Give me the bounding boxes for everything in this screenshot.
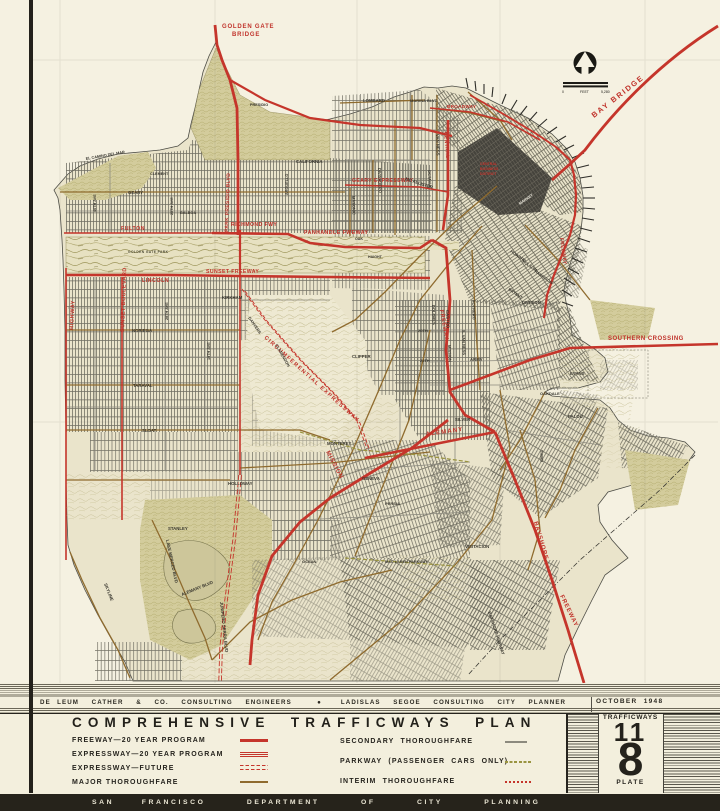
svg-text:BROADWAY: BROADWAY (447, 104, 476, 109)
svg-text:MARINA BLVD: MARINA BLVD (410, 98, 438, 103)
svg-text:DOLORES: DOLORES (431, 305, 437, 325)
svg-text:SUNSET FREEWAY: SUNSET FREEWAY (206, 269, 259, 275)
svg-text:5,280: 5,280 (601, 90, 610, 94)
svg-text:SILVER: SILVER (455, 417, 471, 422)
svg-text:KIRKHAM: KIRKHAM (222, 295, 243, 300)
svg-text:CLIPPER: CLIPPER (352, 354, 372, 359)
svg-text:THIRD: THIRD (539, 450, 544, 462)
svg-text:19TH AVE: 19TH AVE (207, 342, 211, 360)
svg-text:RICHMOND FWY: RICHMOND FWY (231, 222, 277, 228)
svg-text:OAKDALE: OAKDALE (540, 391, 560, 396)
svg-text:0: 0 (562, 90, 564, 94)
svg-text:GOLDEN GATE: GOLDEN GATE (222, 24, 274, 30)
svg-text:PALOU: PALOU (568, 414, 583, 419)
svg-text:VAN NESS: VAN NESS (435, 134, 441, 156)
svg-text:HOLLOWAY: HOLLOWAY (228, 481, 253, 486)
svg-text:CLEMENT: CLEMENT (150, 172, 169, 176)
svg-text:BRIDGE: BRIDGE (232, 32, 260, 38)
svg-text:CASTRO: CASTRO (445, 310, 451, 329)
svg-text:CENTRAL: CENTRAL (480, 162, 498, 166)
svg-text:DIVISION: DIVISION (522, 300, 541, 305)
svg-text:HAIGHT: HAIGHT (368, 255, 383, 259)
svg-text:28TH AVE: 28TH AVE (165, 302, 169, 320)
svg-text:25TH AVE: 25TH AVE (170, 197, 174, 215)
svg-text:FULTON: FULTON (121, 226, 145, 232)
svg-text:24TH: 24TH (420, 358, 430, 363)
svg-text:LOMBARD: LOMBARD (363, 98, 385, 103)
svg-text:SOUTHERN CROSSING: SOUTHERN CROSSING (608, 336, 684, 342)
svg-text:ARGUELLO: ARGUELLO (285, 174, 289, 195)
svg-text:PANHANDLE FWEWAY: PANHANDLE FWEWAY (304, 230, 369, 236)
svg-text:DISTRICT: DISTRICT (480, 172, 497, 176)
svg-text:MISSION: MISSION (447, 345, 453, 362)
svg-text:BUSINESS: BUSINESS (480, 167, 499, 171)
svg-text:TARAVAL: TARAVAL (133, 383, 153, 388)
svg-text:20TH: 20TH (418, 328, 428, 333)
svg-text:LINCOLN: LINCOLN (142, 278, 169, 284)
svg-text:STANLEY: STANLEY (168, 526, 188, 531)
svg-text:GOLDEN GATE PARK: GOLDEN GATE PARK (128, 250, 169, 254)
svg-text:GENEVA: GENEVA (362, 476, 380, 481)
svg-text:PRESIDIO: PRESIDIO (250, 103, 268, 107)
svg-text:OCEAN: OCEAN (302, 559, 317, 564)
svg-text:S. VAN NESS: S. VAN NESS (461, 330, 467, 356)
svg-text:VISITACION: VISITACION (465, 544, 489, 549)
svg-text:DIVISADERO: DIVISADERO (377, 168, 383, 193)
svg-text:MASONIC: MASONIC (351, 196, 357, 215)
svg-text:SLOAT: SLOAT (142, 428, 157, 433)
svg-text:FEET: FEET (580, 90, 590, 94)
svg-text:40TH AVE: 40TH AVE (93, 194, 97, 212)
svg-text:MONTEREY: MONTEREY (327, 441, 351, 446)
svg-text:POTRERO: POTRERO (471, 300, 477, 320)
svg-text:ARMY: ARMY (470, 357, 483, 362)
svg-text:NORIEGA: NORIEGA (132, 328, 152, 333)
svg-text:OAK: OAK (355, 237, 363, 241)
svg-text:CALIFORNIA: CALIFORNIA (296, 159, 323, 164)
svg-text:EVANS: EVANS (570, 371, 585, 376)
svg-text:MAC LAREN PARKWAY: MAC LAREN PARKWAY (385, 560, 428, 564)
svg-text:BALBOA: BALBOA (180, 211, 196, 215)
svg-text:OCTAVIA: OCTAVIA (427, 170, 433, 188)
svg-text:PERSIA: PERSIA (385, 501, 400, 506)
svg-text:GEARY: GEARY (128, 190, 143, 195)
